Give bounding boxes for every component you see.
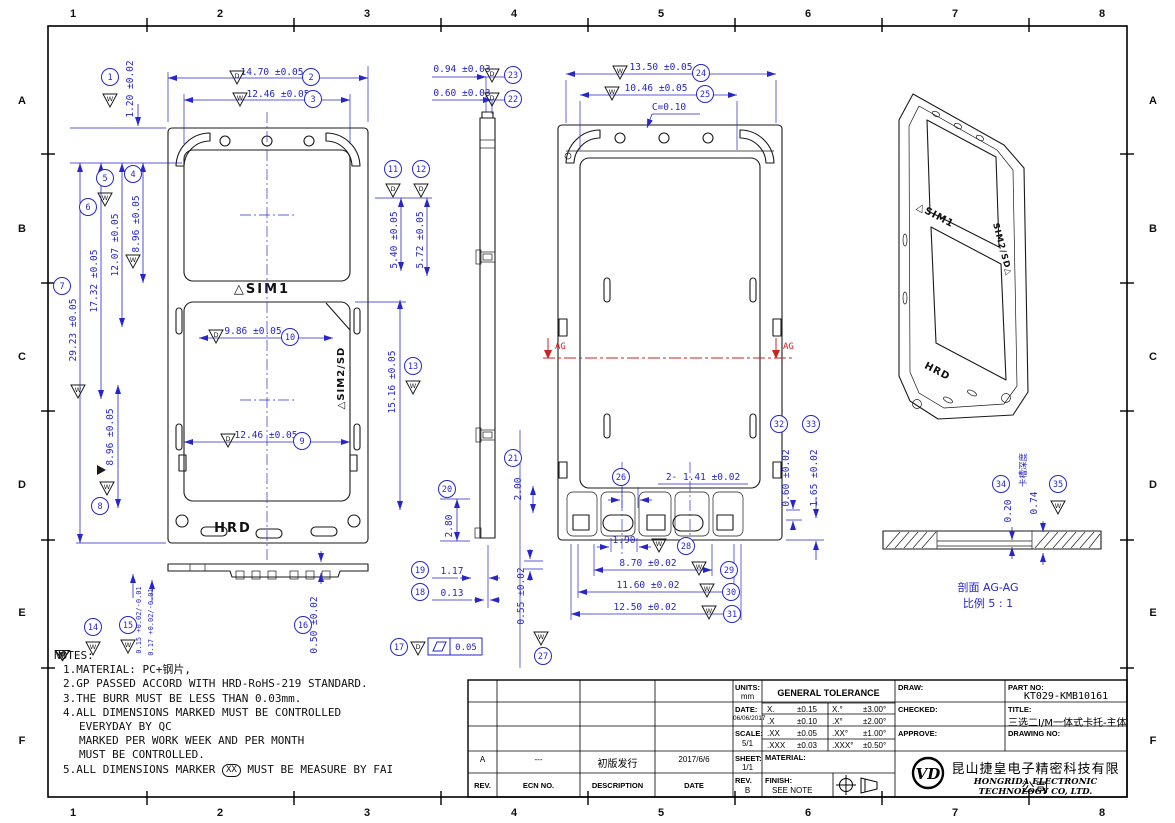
zone-col-label: 5 [658,8,664,20]
svg-text:3: 3 [310,95,315,105]
zone-col-label: 3 [364,8,370,20]
tol-v: ±0.15 [797,705,817,714]
svg-text:W: W [1055,502,1062,510]
zone-col-label: 8 [1099,8,1105,20]
svg-text:27: 27 [538,652,548,662]
units-value: mm [733,692,762,701]
svg-text:8: 8 [97,502,102,512]
note-line: 2.GP PASSED ACCORD WITH HRD-RoHS-219 STA… [63,677,393,691]
rev-entry-ecn: --- [497,755,580,764]
dim-text-4: 8.96 ±0.05 [131,195,142,252]
svg-text:W: W [538,633,545,641]
svg-text:2: 2 [308,73,313,83]
zone-col-label: 2 [217,8,223,20]
tolerance-title: GENERAL TOLERANCE [762,688,895,698]
svg-text:4: 4 [130,170,135,180]
section-caption-scale: 比例 5 : 1 [963,596,1013,610]
approve-label: APPROVE: [898,729,937,738]
svg-text:D: D [225,435,230,443]
svg-text:D: D [489,70,494,78]
svg-text:D: D [415,643,420,651]
dim-text-29: 8.70 ±0.02 [619,558,676,569]
zone-col-label: 4 [511,807,518,819]
company-name-en: HONGRIDA ELECTRONIC TECHNOLOGY CO, LTD. [948,777,1123,797]
zone-col-label: 2 [217,807,223,819]
material-label: MATERIAL: [765,753,806,762]
zone-row-label: B [1149,223,1157,235]
svg-text:W: W [130,256,137,264]
dim-text-2: 14.70 ±0.05 [241,67,304,78]
dim-text-21: 2.00 [513,477,524,500]
ag-label-left: AG [555,342,566,352]
part-no-value: KT029-KMB10161 [1005,691,1127,702]
dim-text-6: 17.32 ±0.05 [89,250,100,313]
svg-text:18: 18 [415,588,425,598]
rev-label: REV. [735,776,752,785]
svg-text:W: W [410,382,417,390]
dim-text-35: 0.74 [1029,491,1040,514]
dim-text-5: 12.07 ±0.05 [110,214,121,277]
company-logo-text: VD [916,765,941,783]
sim1-marking: △SIM1 [234,282,290,297]
zone-col-label: 6 [805,8,811,20]
svg-text:D: D [213,331,218,339]
notes-block: NOTES: 1.MATERIAL: PC+钢片, 2.GP PASSED AC… [54,649,393,777]
svg-text:D: D [418,185,423,193]
tol-v: ±2.00° [863,717,886,726]
tol-k: .X [767,717,775,726]
svg-text:29: 29 [724,566,734,576]
svg-text:26: 26 [616,473,626,483]
tol-k: .X° [832,717,843,726]
balloons: 1 2 3 4 5 6 7 8 9 10 11 12 13 14 15 16 1… [54,65,1067,665]
svg-text:32: 32 [774,420,784,430]
dim-text-33: 1.65 ±0.02 [809,449,820,506]
title-value: 三选二I/M一体式卡托-主体 [1008,714,1127,729]
sheet-value: 1/1 [733,763,762,772]
note-line: 5.ALL DIMENSIONS MARKER XX MUST BE MEASU… [63,763,393,777]
dim-text-12: 5.72 ±0.05 [415,211,426,268]
svg-text:6: 6 [85,203,90,213]
fai-balloon-icon: XX [222,764,241,777]
date-value: 06/06/2017 [733,715,762,722]
svg-text:9: 9 [299,437,304,447]
note-line: 1.MATERIAL: PC+钢片, [63,663,393,677]
drawing-sheet: 1 2 3 4 5 6 7 8 1 2 3 4 5 6 7 8 A B C D … [0,0,1175,823]
zone-col-label: 7 [952,807,958,819]
svg-text:W: W [107,95,114,103]
zone-row-label: F [19,735,26,747]
svg-text:19: 19 [415,566,425,576]
ag-label-right: AG [783,342,794,352]
dim-text-13: 15.16 ±0.05 [387,351,398,414]
zone-row-label: B [18,223,26,235]
dim-text-14: 0.15 +0.02/-0.01 [135,586,143,653]
title-label: TITLE: [1008,705,1031,714]
note-line: 4.ALL DIMENSIONS MARKED D MUST BE CONTRO… [63,706,393,720]
ecn-col-header: ECN NO. [497,781,580,790]
rear-view [558,125,782,556]
dim-text-20: 2.80 [444,514,455,537]
svg-text:7: 7 [59,282,64,292]
note-line: EVERYDAY BY QC [79,720,393,734]
zone-row-label: C [1149,351,1157,363]
zone-col-label: 3 [364,807,370,819]
dim-text-31: 12.50 ±0.02 [614,602,677,613]
tol-k: .XX [767,729,780,738]
tol-k: .XXX° [832,741,853,750]
svg-text:21: 21 [508,454,518,464]
zone-col-label: 6 [805,807,811,819]
svg-text:15: 15 [123,621,133,631]
zone-row-label: D [1149,479,1157,491]
monthly-check-icon: M [54,649,71,662]
dim-text-19: 1.17 [441,566,464,577]
finish-label: FINISH: [765,776,792,785]
rev-entry-desc: 初版发行 [580,755,655,770]
svg-text:W: W [704,585,711,593]
svg-text:D: D [234,72,239,80]
tol-v: ±0.03 [797,741,817,750]
svg-text:25: 25 [700,90,710,100]
svg-text:M: M [60,651,66,659]
dimension-lines [70,66,1043,668]
svg-text:34: 34 [996,480,1006,490]
svg-text:35: 35 [1053,480,1063,490]
finish-value: SEE NOTE [772,786,812,795]
svg-text:D: D [489,94,494,102]
notes-heading: NOTES: [54,649,393,663]
desc-col-header: DESCRIPTION [580,781,655,790]
svg-text:5: 5 [102,174,107,184]
tol-v: ±0.50° [863,741,886,750]
dim-text-3: 12.46 ±0.05 [247,89,310,100]
dim-text-8: 8.96 ±0.05 [105,408,116,465]
section-view-ag: 剖面 AG-AG 比例 5 : 1 [883,531,1101,610]
side-profile-view [475,112,495,538]
svg-text:13: 13 [408,362,418,372]
svg-text:1: 1 [107,73,112,83]
isometric-view: △SIM1 SIM2/SD△ HRD [899,94,1028,419]
svg-text:W: W [104,483,111,491]
svg-text:24: 24 [696,69,706,79]
dim-text-11: 5.40 ±0.05 [389,211,400,268]
svg-text:W: W [102,194,109,202]
iso-brand-marking: HRD [922,361,951,383]
dim-text-7: 29.23 ±0.05 [68,299,79,362]
checked-label: CHECKED: [898,705,938,714]
scale-value: 5/1 [733,739,762,748]
date-col-header: DATE [655,781,733,790]
third-angle-projection-symbol [836,775,877,795]
rev-entry-date: 2017/6/6 [655,755,733,764]
svg-text:22: 22 [508,95,518,105]
tol-k: .XX° [832,729,848,738]
tol-k: .XXX [767,741,785,750]
svg-text:W: W [237,94,244,102]
dim-text-25: 10.46 ±0.05 [625,83,688,94]
tol-v: ±0.10 [797,717,817,726]
svg-text:10: 10 [285,333,295,343]
svg-text:W: W [125,641,132,649]
dim-text-30: 11.60 ±0.02 [617,580,680,591]
svg-text:14: 14 [88,623,98,633]
svg-text:D: D [390,185,395,193]
zone-col-label: 1 [70,807,76,819]
tol-k: X.° [832,705,843,714]
svg-text:23: 23 [508,71,518,81]
svg-text:30: 30 [726,588,736,598]
dim-text-28: 1.90 [613,535,636,546]
dim-text-27: 0.55 ±0.02 [516,567,527,624]
svg-text:11: 11 [388,165,398,175]
rev-entry-rev: A [468,755,497,764]
zone-col-label: 5 [658,807,664,819]
zone-row-label: E [1149,607,1156,619]
zone-row-label: A [1149,95,1157,107]
scale-label: SCALE: [735,729,763,738]
svg-text:12: 12 [416,165,426,175]
zone-col-label: 1 [70,8,76,20]
units-label: UNITS: [735,683,760,692]
dim-text-26: 2- 1.41 ±0.02 [666,472,740,483]
dim-text-22: 0.60 ±0.03 [433,88,490,99]
svg-text:W: W [75,386,82,394]
svg-text:0.05: 0.05 [455,643,477,653]
rev-col-header: REV. [468,781,497,790]
svg-text:28: 28 [681,542,691,552]
sim2-sd-marking: △SIM2/SD [336,347,347,410]
rev-value: B [733,786,762,795]
section-caption-title: 剖面 AG-AG [958,580,1019,594]
bottom-profile-view [168,564,368,579]
zone-col-label: 7 [952,8,958,20]
svg-text:16: 16 [298,621,308,631]
draw-label: DRAW: [898,683,923,692]
sheet-label: SHEET: [735,754,762,763]
svg-text:17: 17 [394,643,404,653]
section-line-ag: AG AG [543,338,794,359]
iso-sim2-sd-marking: SIM2/SD△ [990,222,1014,277]
drawing-no-label: DRAWING NO: [1008,729,1060,738]
dim-label-35: 卡槽深度 [1018,453,1029,488]
svg-text:W: W [696,563,703,571]
zone-row-label: E [18,607,25,619]
zone-row-label: D [18,479,26,491]
dim-text-32: 0.60 ±0.02 [781,449,792,506]
tol-v: ±3.00° [863,705,886,714]
zone-col-label: 4 [511,8,518,20]
dim-text-1: 1.20 ±0.02 [125,60,136,117]
svg-text:31: 31 [727,610,737,620]
iso-sim1-marking: △SIM1 [915,201,956,230]
note-line: MUST BE CONTROLLED. [79,748,393,762]
tol-v: ±0.05 [797,729,817,738]
svg-text:20: 20 [442,485,452,495]
zone-row-label: A [18,95,26,107]
zone-col-label: 8 [1099,807,1105,819]
zone-row-label: C [18,351,26,363]
dim-text-34: 0.20 [1003,499,1014,522]
svg-text:W: W [617,67,624,75]
flatness-control-frame: 0.05 [428,638,482,655]
date-label: DATE: [735,705,757,714]
svg-text:W: W [706,607,713,615]
dim-text-15: 0.17 +0.02/-0.01 [147,588,155,655]
tol-k: X. [767,705,775,714]
brand-marking: HRD [214,521,252,536]
dim-text-10: 9.86 ±0.05 [224,326,281,337]
tol-v: ±1.00° [863,729,886,738]
inspection-marks: W D W W W W W D D D D W W W D D D W W W … [71,66,1065,655]
note-line: 3.THE BURR MUST BE LESS THAN 0.03mm. [63,692,393,706]
dim-text-24: 13.50 ±0.05 [630,62,693,73]
svg-text:W: W [609,88,616,96]
note-line: MARKED W PER WORK WEEK AND M PER MONTH [79,734,393,748]
dim-text-18: 0.13 [441,588,464,599]
chamfer-note: C=0.10 [652,102,687,113]
dim-text-23: 0.94 ±0.03 [433,64,490,75]
zone-row-label: F [1150,735,1157,747]
dim-text-9: 12.46 ±0.05 [235,430,298,441]
svg-text:W: W [656,540,663,548]
svg-text:33: 33 [806,420,816,430]
